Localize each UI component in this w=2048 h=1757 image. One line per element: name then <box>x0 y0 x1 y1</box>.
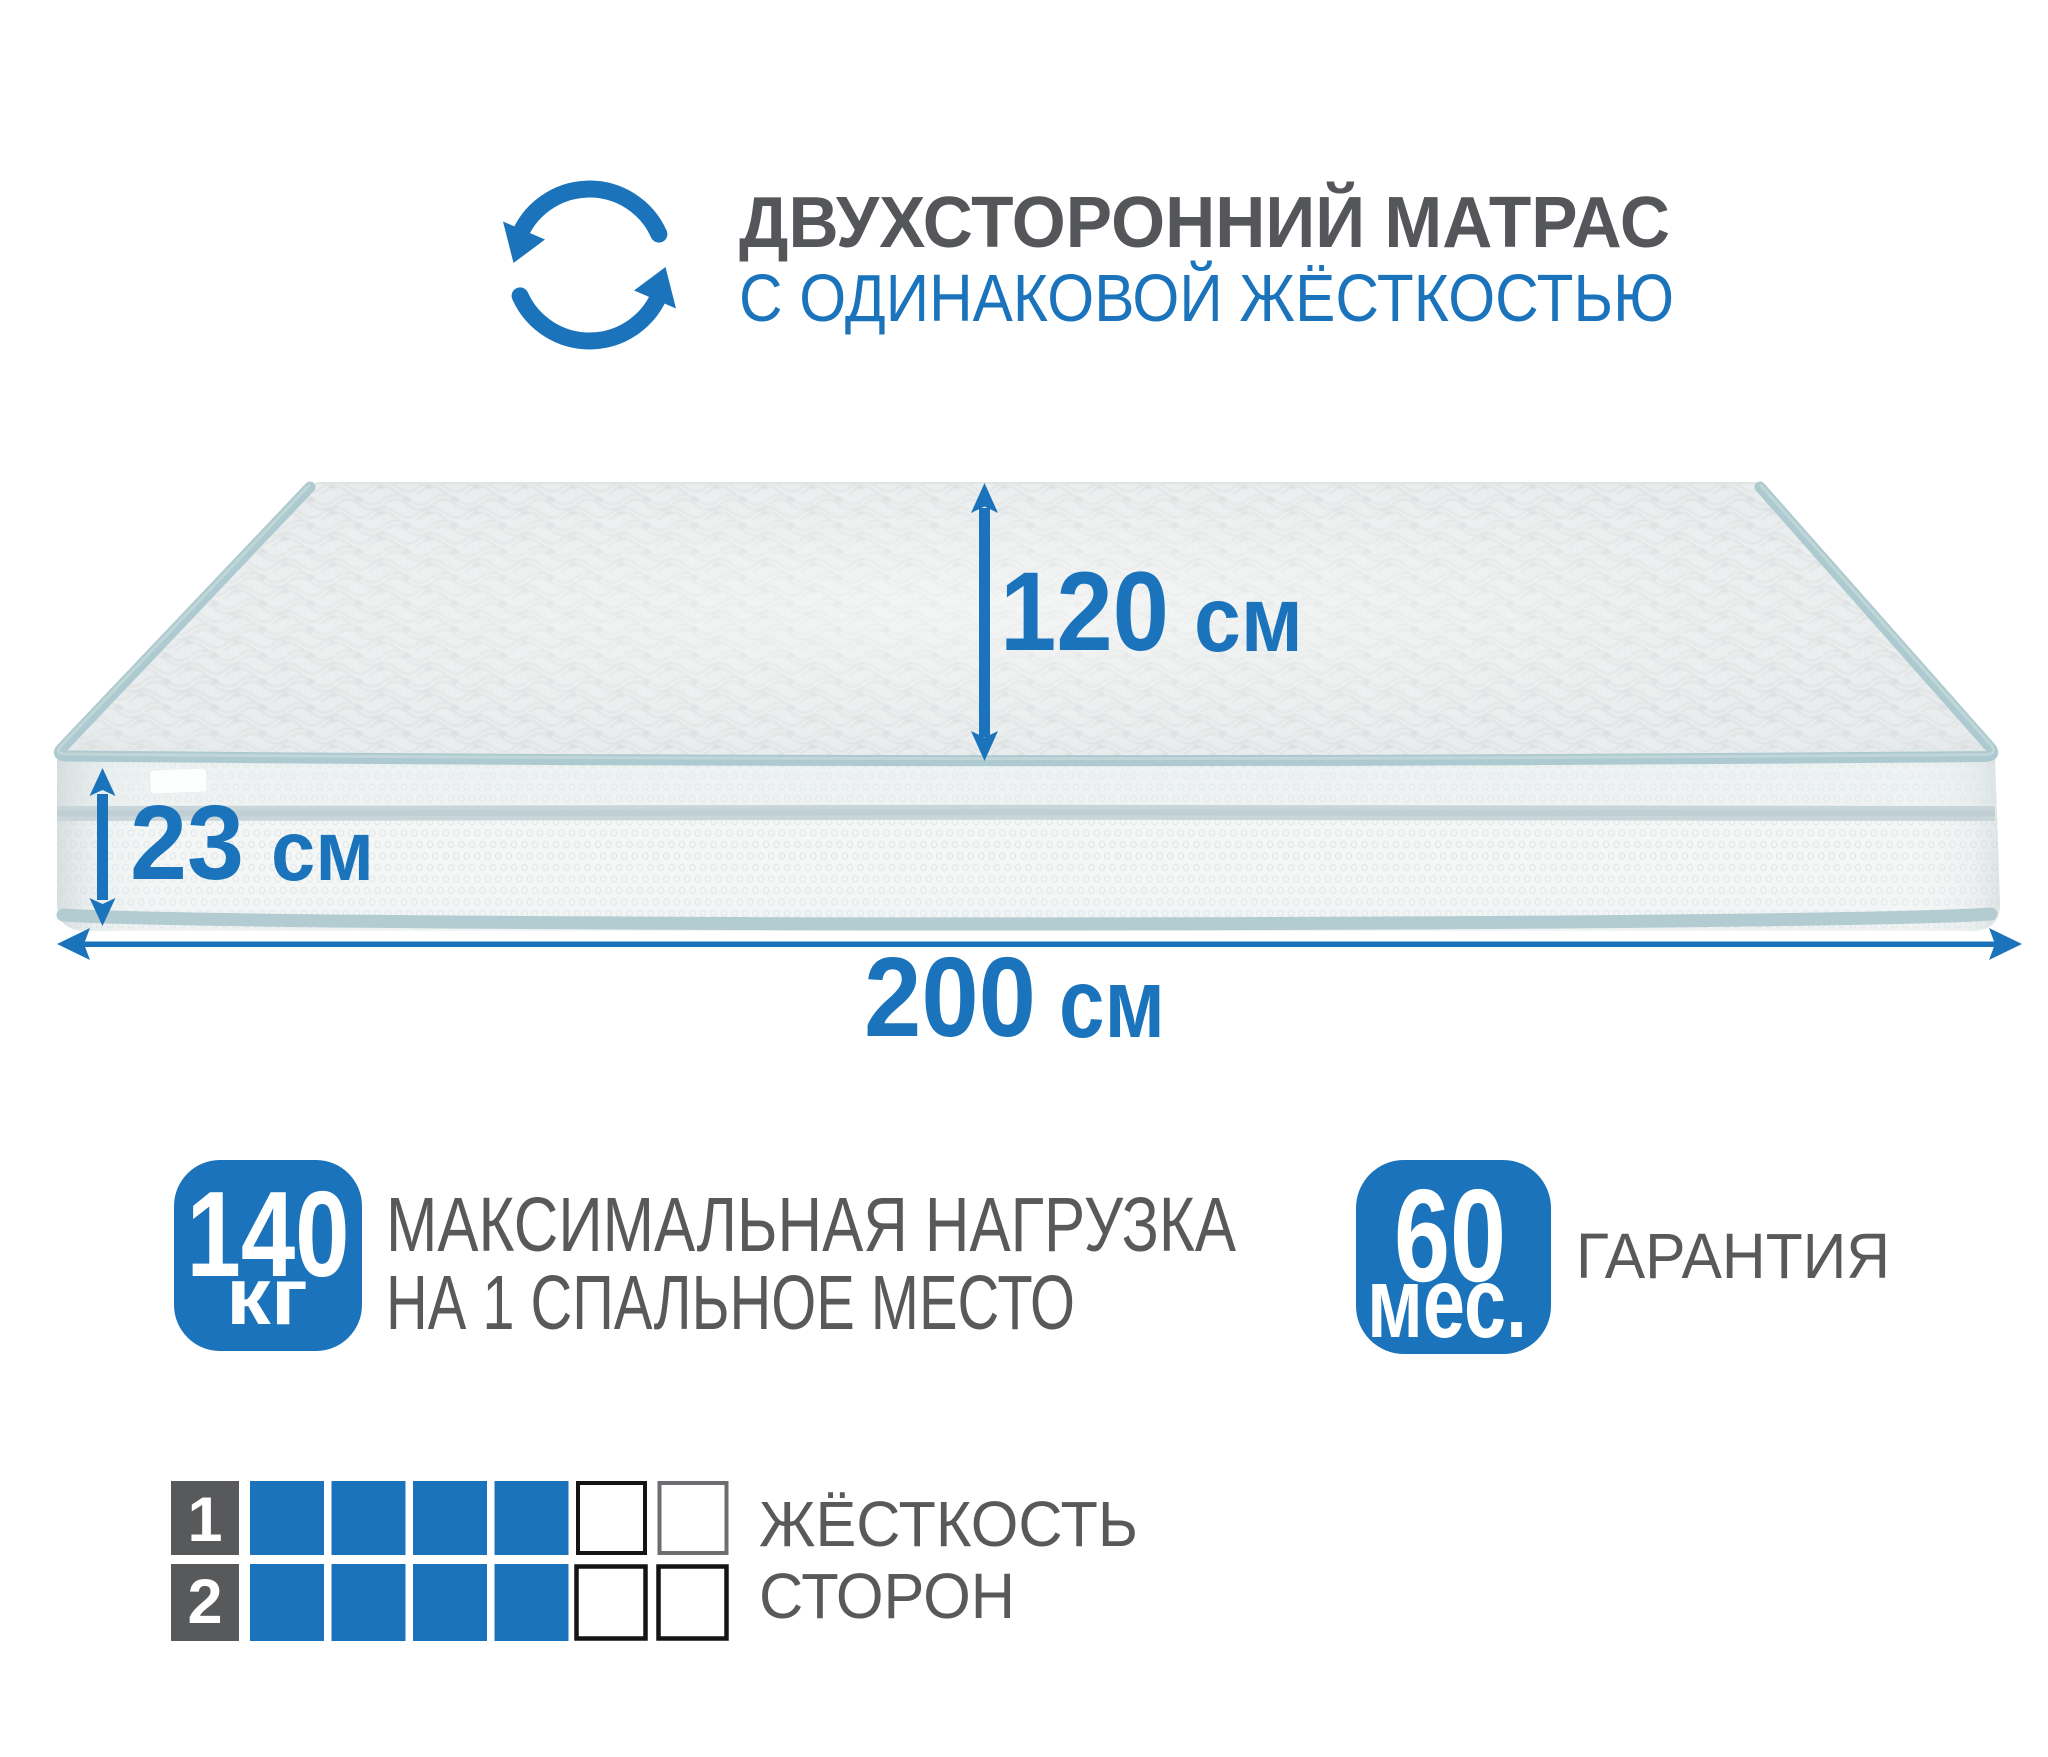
svg-text:СТОРОН: СТОРОН <box>759 1560 1015 1632</box>
svg-text:120: 120 <box>1000 549 1169 674</box>
svg-text:см: см <box>1194 567 1303 671</box>
svg-text:МАКСИМАЛЬНАЯ НАГРУЗКА: МАКСИМАЛЬНАЯ НАГРУЗКА <box>386 1182 1237 1268</box>
svg-text:см: см <box>1059 948 1165 1058</box>
svg-text:2: 2 <box>187 1567 222 1637</box>
svg-text:ГАРАНТИЯ: ГАРАНТИЯ <box>1576 1220 1890 1292</box>
svg-text:см: см <box>271 804 374 899</box>
svg-text:200: 200 <box>864 934 1036 1060</box>
svg-text:23: 23 <box>130 784 244 902</box>
svg-text:ДВУХСТОРОННИЙ МАТРАС: ДВУХСТОРОННИЙ МАТРАС <box>739 181 1670 263</box>
svg-text:НА 1 СПАЛЬНОЕ МЕСТО: НА 1 СПАЛЬНОЕ МЕСТО <box>386 1260 1075 1346</box>
svg-text:мес.: мес. <box>1367 1247 1527 1359</box>
svg-text:кг: кг <box>226 1252 308 1342</box>
svg-text:1: 1 <box>187 1485 222 1555</box>
svg-text:С ОДИНАКОВОЙ ЖЁСТКОСТЬЮ: С ОДИНАКОВОЙ ЖЁСТКОСТЬЮ <box>739 260 1674 336</box>
svg-text:ЖЁСТКОСТЬ: ЖЁСТКОСТЬ <box>759 1488 1138 1560</box>
